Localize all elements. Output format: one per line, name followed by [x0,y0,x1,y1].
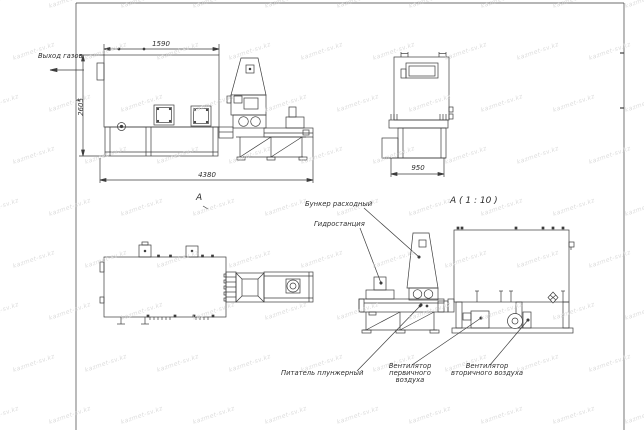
secondary-fan-line2: вторичного воздуха [451,369,523,377]
leader-lines [203,206,529,371]
gas-outlet-label: Выход газов [38,52,83,60]
detail-view-linework [452,227,574,333]
drawing-sheet: Выход газов 1590 2605 4380 950 А А ( 1 :… [0,0,644,430]
dim-2605: 2605 [77,90,85,124]
dim-950: 950 [400,164,436,172]
detail-view-label: А ( 1 : 10 ) [450,196,498,206]
callout-plunger-feeder: Питатель плунжерный [281,369,363,377]
callout-primary-air-fan: Вентилятор первичного воздуха [374,363,446,384]
plan-view-label: А [196,193,202,203]
callout-secondary-air-fan: Вентилятор вторичного воздуха [449,363,525,377]
end-view-linework [382,52,453,177]
callout-hydraulic-station: Гидростанция [314,220,365,228]
technical-drawing-svg [0,0,644,430]
primary-fan-line2: первичного воздуха [389,369,431,384]
callout-hopper: Бункер расходный [305,200,372,208]
plan-view-linework [100,242,313,324]
middle-view-linework [359,233,454,333]
side-view-linework [50,44,313,183]
dim-1590: 1590 [143,40,179,48]
dim-4380: 4380 [189,171,225,179]
frame-border [76,3,624,430]
